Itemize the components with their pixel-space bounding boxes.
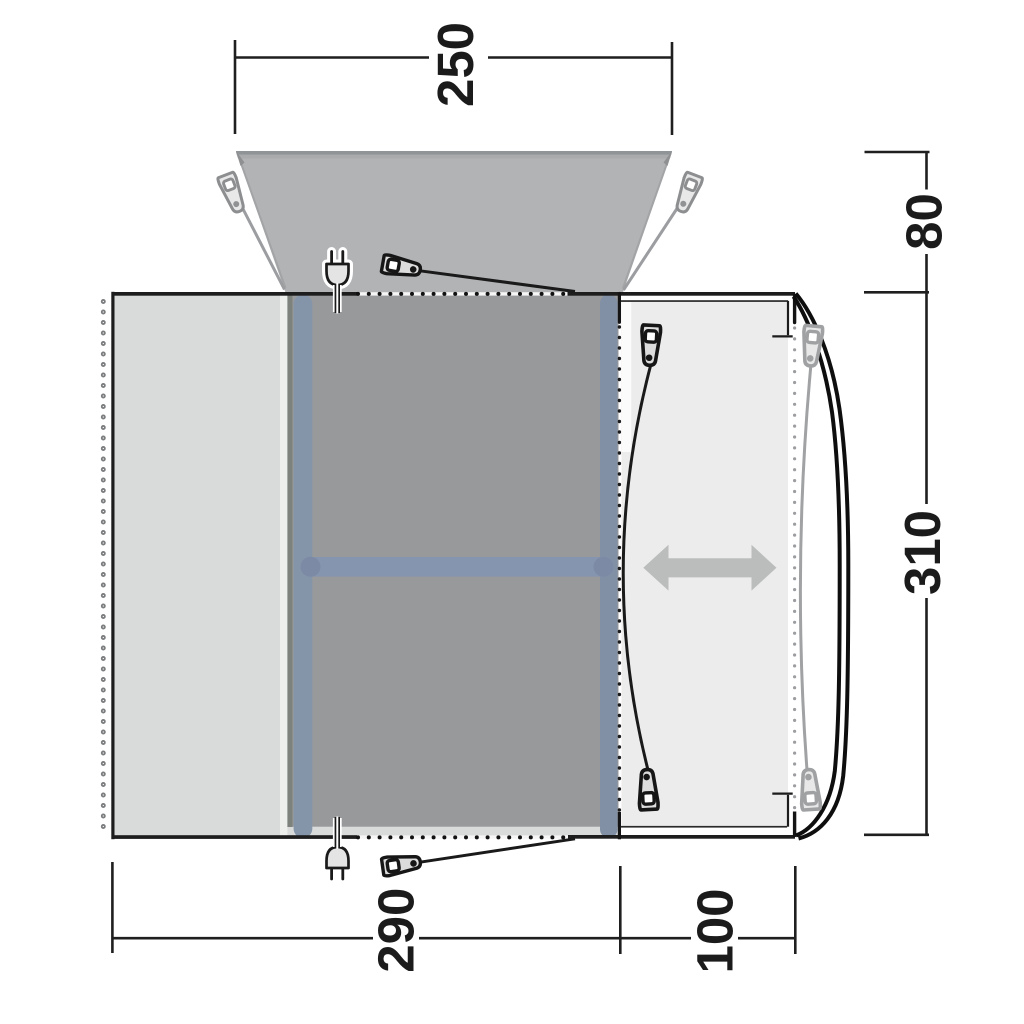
svg-text:80: 80 bbox=[896, 193, 953, 250]
svg-text:310: 310 bbox=[894, 510, 951, 595]
svg-text:250: 250 bbox=[427, 22, 484, 107]
svg-text:290: 290 bbox=[368, 888, 425, 973]
svg-text:100: 100 bbox=[687, 888, 744, 973]
